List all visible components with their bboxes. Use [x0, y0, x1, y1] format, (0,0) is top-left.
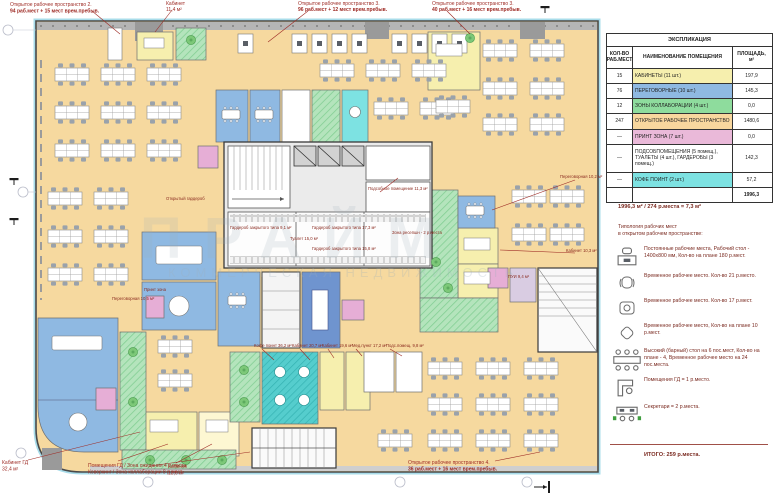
table-row: — ПОДСОБПОМЕЩЕНИЯ (5 помещ.), ТУАЛЕТЫ (4… — [607, 145, 772, 173]
table-row: 76 ПЕРЕГОВОРНЫЕ (10 шт.) 145,3 — [607, 84, 772, 99]
table-row: — ПРИНТ ЗОНА (7 шт.) 0,0 — [607, 130, 772, 145]
zone-cabinet — [320, 352, 344, 410]
room-label: Кабинет 10,3 м² — [566, 248, 597, 253]
cell-name: ПЕРЕГОВОРНЫЕ (10 шт.) — [633, 84, 733, 98]
annotation-line: 32,4 м² — [2, 467, 19, 473]
room-label: ПУИ 9,4 м² — [508, 274, 530, 279]
cell-area: 0,0 — [733, 99, 770, 113]
elevators — [294, 146, 364, 166]
zone-room — [396, 352, 422, 392]
cell-count: 12 — [607, 99, 633, 113]
typology-item: Секретари = 2 р.места. — [610, 404, 770, 423]
cell-name — [633, 188, 733, 202]
zone-print — [96, 388, 116, 410]
cell-name: ЗОНЫ КОЛЛАБОРАЦИИ (4 шт.) — [633, 99, 733, 113]
lounge-chair-icon — [610, 298, 644, 317]
grid-bubble — [18, 187, 28, 197]
section-flag — [534, 481, 549, 493]
typology-item-text: Временное рабочее место, Кол-во на плане… — [644, 323, 770, 337]
typology-item-text: Высокий (барный) стол на 6 пос.мест, Кол… — [644, 348, 770, 369]
total-separator — [610, 444, 768, 445]
zone-room — [282, 90, 310, 142]
explication-table: ЭКСПЛИКАЦИЯ КОЛ-ВО РАБ.МЕСТ НАИМЕНОВАНИЕ… — [606, 33, 773, 203]
level-flag — [10, 218, 19, 225]
floor-plan-sheet: ПРАЙМ КОММЕРЧЕСКАЯ НЕДВИЖИМОСТЬ Гардероб… — [0, 0, 774, 493]
room-label: Зона ресепшн - 2 р.места — [392, 230, 443, 235]
typology-total: ИТОГО: 259 р.места. — [644, 452, 700, 458]
room-label: Кабинет 20,7 м² — [292, 343, 323, 348]
typology-item-text: Временное рабочее место. Кол-во 17 р.мес… — [644, 298, 753, 305]
cell-count: — — [607, 130, 633, 144]
cell-name: КАБИНЕТЫ (11 шт.) — [633, 69, 733, 83]
room-label: Гардероб закрытого типа 15,8 м² — [312, 246, 376, 251]
secretary-desks-icon — [610, 404, 644, 423]
typology-item-text: Временное рабочее место. Кол-во 21 р.мес… — [644, 273, 756, 280]
explication-title: ЭКСПЛИКАЦИЯ — [607, 34, 772, 47]
annotation-line: 96 раб.мест + 12 мест врем.пребыв. — [298, 6, 388, 13]
cell-count: — — [607, 173, 633, 187]
typology-item: Постоянные рабочие места, Рабочий стол -… — [610, 246, 770, 267]
cell-count — [607, 188, 633, 202]
grid-bubble — [143, 477, 153, 487]
col-header-name: НАИМЕНОВАНИЕ ПОМЕЩЕНИЯ — [633, 47, 733, 68]
cell-area: 145,3 — [733, 84, 770, 98]
grid-bubble — [522, 477, 532, 487]
room-label: Подс.помещ. 9,8 м² — [386, 343, 424, 348]
cell-count: 76 — [607, 84, 633, 98]
table-total-row: 1996,3 — [607, 188, 772, 202]
cell-area: 197,9 — [733, 69, 770, 83]
room-label: Кофе поинт 36,2 м² — [254, 343, 292, 348]
table-row: 15 КАБИНЕТЫ (11 шт.) 197,9 — [607, 69, 772, 84]
entry-vestibule — [365, 22, 389, 39]
zone-print — [198, 146, 218, 168]
table-row: — КОФЕ ПОИНТ (2 шт.) 57,2 — [607, 173, 772, 188]
room-label: Мед.пункт 17,2 м² — [352, 343, 387, 348]
stairs-bottom-center — [252, 428, 336, 468]
room-label: Гардероб закрытого типа 9,1 м² — [230, 225, 292, 230]
cell-area: 1480,6 — [733, 114, 770, 128]
annotation-line: 36 раб.мест + 16 мест врем.пребыв. — [408, 466, 498, 473]
room-label: Открытый гардероб — [166, 196, 205, 201]
desk-workstation-icon — [610, 246, 644, 267]
bar-table-stools-icon — [610, 348, 644, 371]
stairs-bottom-right — [538, 268, 597, 352]
annotation-line: Открытое рабочее пространство 2. — [10, 2, 92, 8]
cell-area: 0,0 — [733, 130, 770, 144]
zone-room — [364, 352, 394, 392]
col-header-area: ПЛОЩАДЬ, м² — [733, 47, 770, 68]
typology-heading: Типология рабочих мест в открытом рабоче… — [618, 224, 768, 238]
room-label: Гардероб закрытого типа 17,3 м² — [312, 225, 376, 230]
cell-name: ПОДСОБПОМЕЩЕНИЯ (5 помещ.), ТУАЛЕТЫ (4 ш… — [633, 145, 733, 172]
service-room — [366, 146, 430, 180]
entry-vestibule — [42, 448, 62, 470]
grid-bubble — [3, 25, 13, 35]
table-row: 247 ОТКРЫТОЕ РАБОЧЕЕ ПРОСТРАНСТВО 1480,6 — [607, 114, 772, 129]
director-desk-icon — [610, 377, 644, 398]
room-label: Принт зона — [144, 287, 167, 292]
typology-heading-line1: Типология рабочих мест — [618, 224, 768, 231]
zone-collaboration — [312, 90, 340, 142]
cell-name: ПРИНТ ЗОНА (7 шт.) — [633, 130, 733, 144]
typology-item-text: Секретари = 2 р.места. — [644, 404, 700, 411]
room-label: Переговорная 10,5 м² — [112, 296, 155, 301]
room-label: Туалет 15,0 м² — [290, 236, 319, 241]
room-label: Переговорная 10,2 м² — [560, 174, 603, 179]
zone-collaboration — [420, 298, 498, 332]
zone-coffee-point — [262, 352, 318, 424]
grid-bubble — [16, 448, 26, 458]
table-row: 12 ЗОНЫ КОЛЛАБОРАЦИИ (4 шт.) 0,0 — [607, 99, 772, 114]
cell-total-area: 1996,3 — [733, 188, 770, 202]
annotation-line: Открытое рабочее пространство 4. — [408, 460, 490, 466]
pouf-icon — [610, 323, 644, 342]
typology-item: Помещения ГД = 1 р.место. — [610, 377, 770, 398]
zone-meeting — [218, 272, 260, 346]
col-header-count: КОЛ-ВО РАБ.МЕСТ — [607, 47, 633, 68]
office-chair-icon — [610, 273, 644, 292]
grid-bubble — [395, 477, 405, 487]
entry-vestibule — [520, 22, 545, 39]
typology-item-text: Постоянные рабочие места, Рабочий стол -… — [644, 246, 770, 260]
typology-item: Высокий (барный) стол на 6 пос.мест, Кол… — [610, 348, 770, 371]
annotation-line: 94 раб.мест + 15 мест врем.пребыв. — [10, 8, 100, 15]
level-flag — [10, 178, 19, 185]
cell-name: ОТКРЫТОЕ РАБОЧЕЕ ПРОСТРАНСТВО — [633, 114, 733, 128]
room-label: Кабинет 19,6 м² — [322, 343, 353, 348]
cell-name: КОФЕ ПОИНТ (2 шт.) — [633, 173, 733, 187]
typology-heading-line2: в открытом рабочем пространстве: — [618, 231, 768, 238]
typology-item-text: Помещения ГД = 1 р.место. — [644, 377, 710, 384]
cell-area: 142,3 — [733, 145, 770, 172]
section-flag — [541, 6, 550, 13]
zone-collaboration — [230, 352, 260, 422]
typology-item: Временное рабочее место. Кол-во 21 р.мес… — [610, 273, 770, 292]
watermark-line2: КОММЕРЧЕСКАЯ НЕДВИЖИМОСТЬ — [168, 265, 518, 280]
typology-item: Временное рабочее место. Кол-во 17 р.мес… — [610, 298, 770, 317]
cell-count: 247 — [607, 114, 633, 128]
annotation-line: 13,6 м² — [168, 471, 185, 477]
cell-area: 57,2 — [733, 173, 770, 187]
annotation-line: Кабинет — [168, 464, 188, 470]
area-per-workplace: 1996,3 м² / 274 р.места = 7,3 м² — [618, 204, 768, 210]
cell-count: 15 — [607, 69, 633, 83]
floor-plan: ПРАЙМ КОММЕРЧЕСКАЯ НЕДВИЖИМОСТЬ Гардероб… — [0, 0, 604, 493]
room-label: Подсобное помещение 11,3 м² — [368, 186, 428, 191]
zone-print — [342, 300, 364, 320]
annotation-line: 11,4 м² — [166, 7, 182, 13]
cell-count: — — [607, 145, 633, 172]
typology-list: Постоянные рабочие места, Рабочий стол -… — [610, 246, 770, 429]
typology-item: Временное рабочее место, Кол-во на плане… — [610, 323, 770, 342]
right-panel: ЭКСПЛИКАЦИЯ КОЛ-ВО РАБ.МЕСТ НАИМЕНОВАНИЕ… — [604, 0, 774, 493]
annotation-line: Кабинет ГД — [2, 460, 29, 466]
annotation-line: 40 раб.мест + 16 мест врем.пребыв. — [432, 6, 522, 13]
